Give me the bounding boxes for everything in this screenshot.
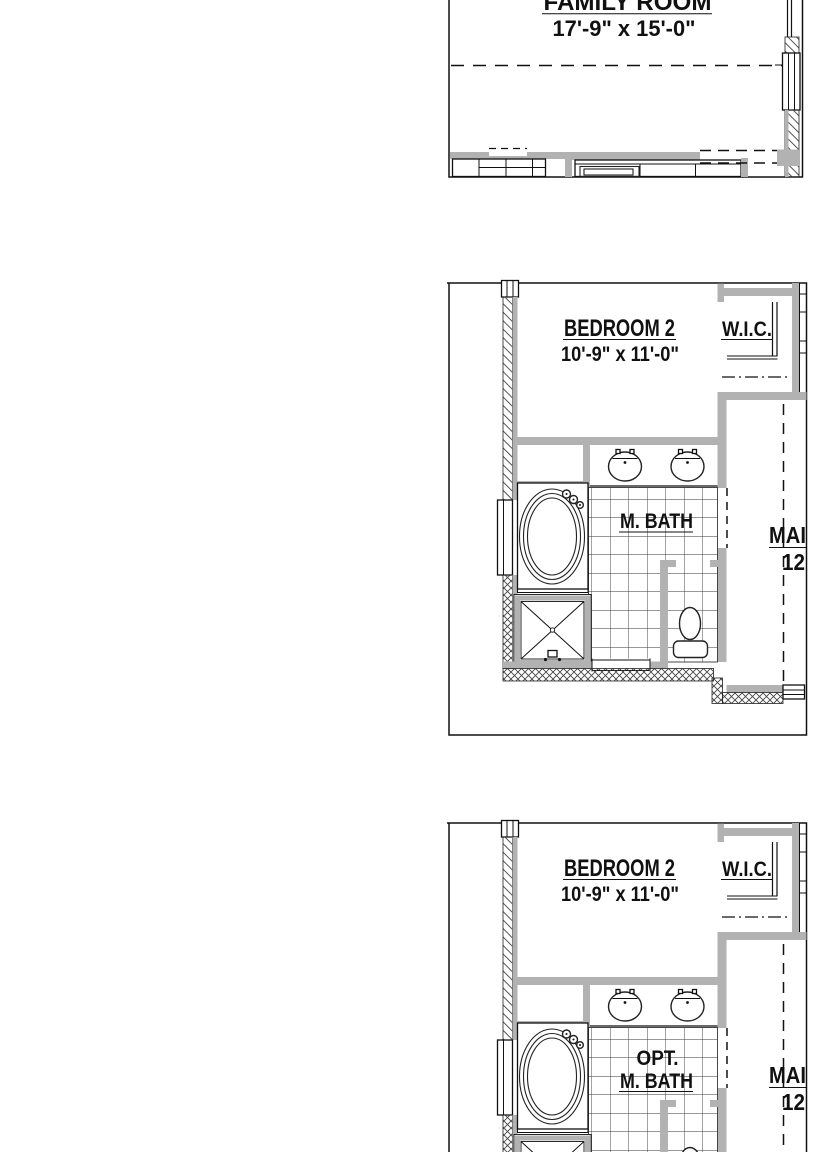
room-name: M. BATH <box>620 509 693 533</box>
cabinet <box>453 159 546 177</box>
room-name: W.I.C. <box>722 857 772 881</box>
floor-plan-canvas: FAMILY ROOM 17'-9" x 15'-0" BEDROOM 2 10… <box>0 0 823 1152</box>
main-bedroom-clipped-label: MAI 12 <box>769 522 807 575</box>
room-dimensions: 12 <box>782 1089 805 1115</box>
room-name: MAI <box>769 522 806 548</box>
room-name-line1: OPT. <box>637 1046 679 1070</box>
floor-plan-drawing: FAMILY ROOM 17'-9" x 15'-0" BEDROOM 2 10… <box>0 0 823 1152</box>
entertainment-center <box>575 158 748 177</box>
room-name: BEDROOM 2 <box>564 855 675 882</box>
room-dimensions: 10'-9" x 11'-0" <box>561 343 679 366</box>
mbath-label: M. BATH <box>619 509 693 533</box>
room-name-line2: M. BATH <box>620 1069 693 1093</box>
window-right <box>783 53 801 110</box>
room-name: BEDROOM 2 <box>564 315 675 342</box>
room-dimensions: 10'-9" x 11'-0" <box>561 883 679 906</box>
optional-master-bath-fragment: BEDROOM 2 10'-9" x 11'-0" W.I.C. OPT. M.… <box>447 821 807 1152</box>
bedroom2-label: BEDROOM 2 10'-9" x 11'-0" <box>561 315 679 366</box>
bedroom2-label: BEDROOM 2 10'-9" x 11'-0" <box>561 855 679 906</box>
room-name: MAI <box>769 1062 806 1088</box>
master-bath-fragment: BEDROOM 2 10'-9" x 11'-0" W.I.C. M. BATH… <box>447 281 807 736</box>
room-name: W.I.C. <box>722 317 772 341</box>
family-room-fragment: FAMILY ROOM 17'-9" x 15'-0" <box>449 0 803 177</box>
media-wall <box>450 149 800 178</box>
family-room-label: FAMILY ROOM 17'-9" x 15'-0" <box>542 0 712 41</box>
main-bedroom-clipped-label: MAI 12 <box>769 1062 807 1115</box>
wic-label: W.I.C. <box>721 317 772 341</box>
room-dimensions: 17'-9" x 15'-0" <box>553 16 696 41</box>
room-dimensions: 12 <box>782 549 805 575</box>
wic-label: W.I.C. <box>721 857 772 881</box>
